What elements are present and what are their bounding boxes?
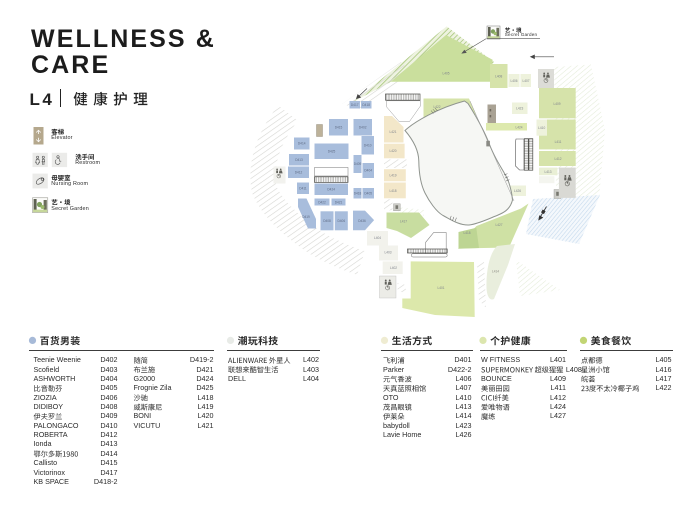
svg-text:L427: L427 — [495, 223, 502, 227]
svg-text:L413: L413 — [544, 170, 551, 174]
svg-text:L411: L411 — [555, 140, 562, 144]
svg-text:L424: L424 — [515, 125, 522, 129]
svg-text:L420: L420 — [389, 149, 396, 153]
svg-text:L423: L423 — [516, 107, 523, 111]
svg-text:L406: L406 — [510, 79, 517, 83]
svg-text:D424: D424 — [327, 188, 335, 192]
svg-text:D413: D413 — [295, 158, 303, 162]
svg-text:D418: D418 — [362, 103, 370, 107]
svg-text:D417: D417 — [351, 103, 359, 107]
svg-text:L408: L408 — [495, 75, 502, 79]
svg-text:L409: L409 — [553, 102, 560, 106]
svg-text:L402: L402 — [390, 266, 397, 270]
svg-text:L403: L403 — [384, 251, 391, 255]
svg-text:L404: L404 — [374, 236, 381, 240]
svg-text:L405: L405 — [442, 72, 449, 76]
svg-text:L426: L426 — [514, 189, 521, 193]
svg-text:D405: D405 — [364, 192, 372, 196]
svg-text:D409: D409 — [354, 162, 362, 166]
svg-text:D419: D419 — [302, 215, 310, 219]
svg-text:D410: D410 — [364, 144, 372, 148]
svg-text:L414: L414 — [492, 270, 499, 274]
svg-text:L422: L422 — [433, 105, 440, 109]
svg-text:L418: L418 — [389, 189, 396, 193]
svg-text:L419: L419 — [389, 174, 396, 178]
svg-text:L407: L407 — [522, 79, 529, 83]
svg-text:D436: D436 — [358, 219, 366, 223]
svg-text:D412: D412 — [295, 171, 303, 175]
svg-text:D404: D404 — [364, 169, 372, 173]
svg-text:L410: L410 — [538, 126, 545, 130]
svg-text:D414: D414 — [298, 142, 306, 146]
svg-text:L418: L418 — [463, 231, 470, 235]
svg-text:D425: D425 — [328, 150, 336, 154]
svg-text:D411: D411 — [299, 187, 307, 191]
svg-text:L421: L421 — [389, 130, 396, 134]
svg-text:D418: D418 — [354, 192, 362, 196]
svg-text:D408: D408 — [323, 219, 331, 223]
svg-text:D406: D406 — [337, 219, 345, 223]
svg-text:L401: L401 — [437, 286, 444, 290]
svg-text:L412: L412 — [554, 157, 561, 161]
svg-text:D402: D402 — [359, 126, 367, 130]
svg-text:D422: D422 — [318, 201, 326, 205]
svg-text:D415: D415 — [335, 126, 343, 130]
svg-text:L417: L417 — [400, 220, 407, 224]
svg-text:D421: D421 — [335, 201, 343, 205]
